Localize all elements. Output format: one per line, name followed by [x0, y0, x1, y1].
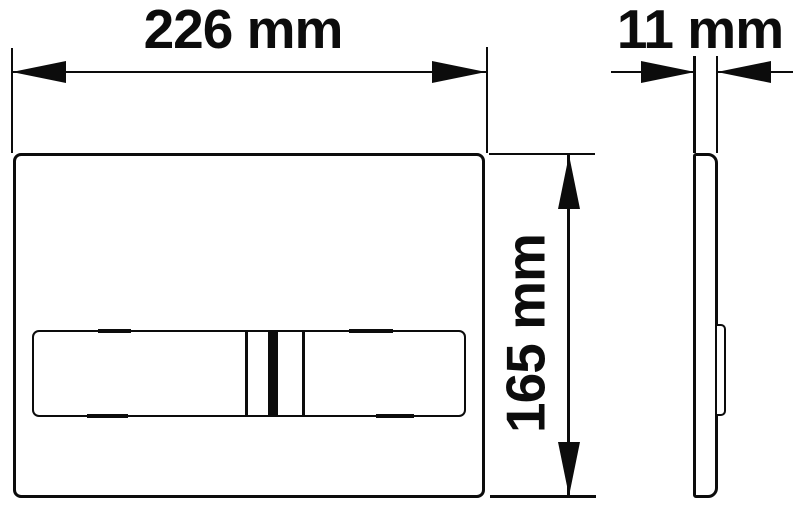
- width-arrow-left-icon: [12, 61, 66, 83]
- button-tab-top-right: [349, 329, 393, 334]
- side-view-button-tab: [715, 324, 726, 416]
- height-extension-line-bottom: [490, 495, 596, 498]
- button-tab-bottom-left: [87, 414, 128, 419]
- depth-arrow-inward-right-icon: [717, 61, 771, 83]
- height-arrow-down-icon: [558, 442, 580, 496]
- height-arrow-up-icon: [558, 155, 580, 209]
- panel-divider-right: [302, 332, 305, 415]
- panel-center-bar: [268, 332, 278, 415]
- height-dimension-label: 165 mm: [499, 213, 554, 453]
- width-dimension-label: 226 mm: [123, 2, 363, 57]
- technical-drawing-flush-plate: 226 mm 11 mm 165 mm: [0, 0, 800, 506]
- width-arrow-right-icon: [432, 61, 486, 83]
- width-dimension-line: [12, 71, 486, 74]
- depth-dimension-label: 11 mm: [580, 2, 800, 57]
- front-view-plate-outline: [13, 153, 485, 498]
- button-panel-outline: [32, 330, 466, 417]
- depth-arrow-inward-left-icon: [641, 61, 695, 83]
- panel-divider-left: [245, 332, 248, 415]
- button-tab-top-left: [98, 329, 131, 334]
- button-tab-bottom-right: [376, 414, 414, 419]
